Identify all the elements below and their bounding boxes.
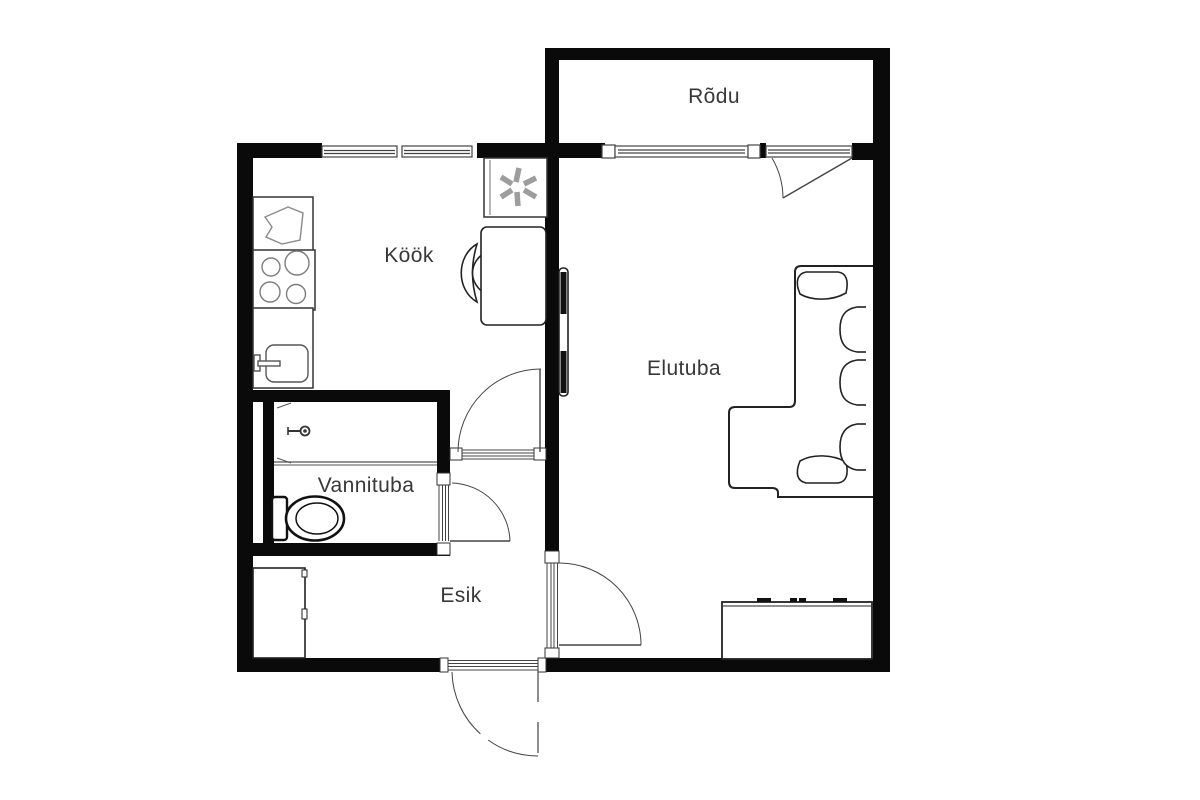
living-room-window [602, 145, 760, 158]
floor-plan: Rõdu Köök Elutuba Vannituba Esik [0, 0, 1200, 800]
balcony-door-sill [766, 146, 852, 157]
balcony-door [772, 158, 852, 198]
kitchen-fixtures [253, 158, 547, 388]
entrance-door [440, 658, 546, 756]
room-label-esik: Esik [440, 584, 481, 608]
kitchen-window [322, 146, 472, 157]
toilet-icon [272, 497, 344, 541]
wardrobe [253, 568, 307, 658]
floor-plan-drawing [0, 0, 1200, 800]
shower-head-icon [288, 427, 310, 436]
sideboard [722, 598, 872, 659]
bathroom-door [437, 473, 510, 555]
fridge-freezer-icon [484, 158, 547, 217]
corner-sofa [729, 266, 873, 497]
shower-area [274, 403, 437, 465]
dining-table [481, 227, 546, 325]
bathroom-fixtures [272, 403, 437, 541]
living-room-door [545, 551, 641, 658]
living-room-fixtures [559, 266, 873, 659]
kitchen-door [450, 369, 546, 460]
hallway-fixtures [253, 568, 307, 658]
room-label-rodu: Rõdu [688, 85, 740, 109]
tv [559, 268, 568, 396]
room-label-elutuba: Elutuba [647, 357, 721, 381]
room-label-kook: Köök [384, 244, 433, 268]
room-label-vannituba: Vannituba [318, 474, 415, 498]
